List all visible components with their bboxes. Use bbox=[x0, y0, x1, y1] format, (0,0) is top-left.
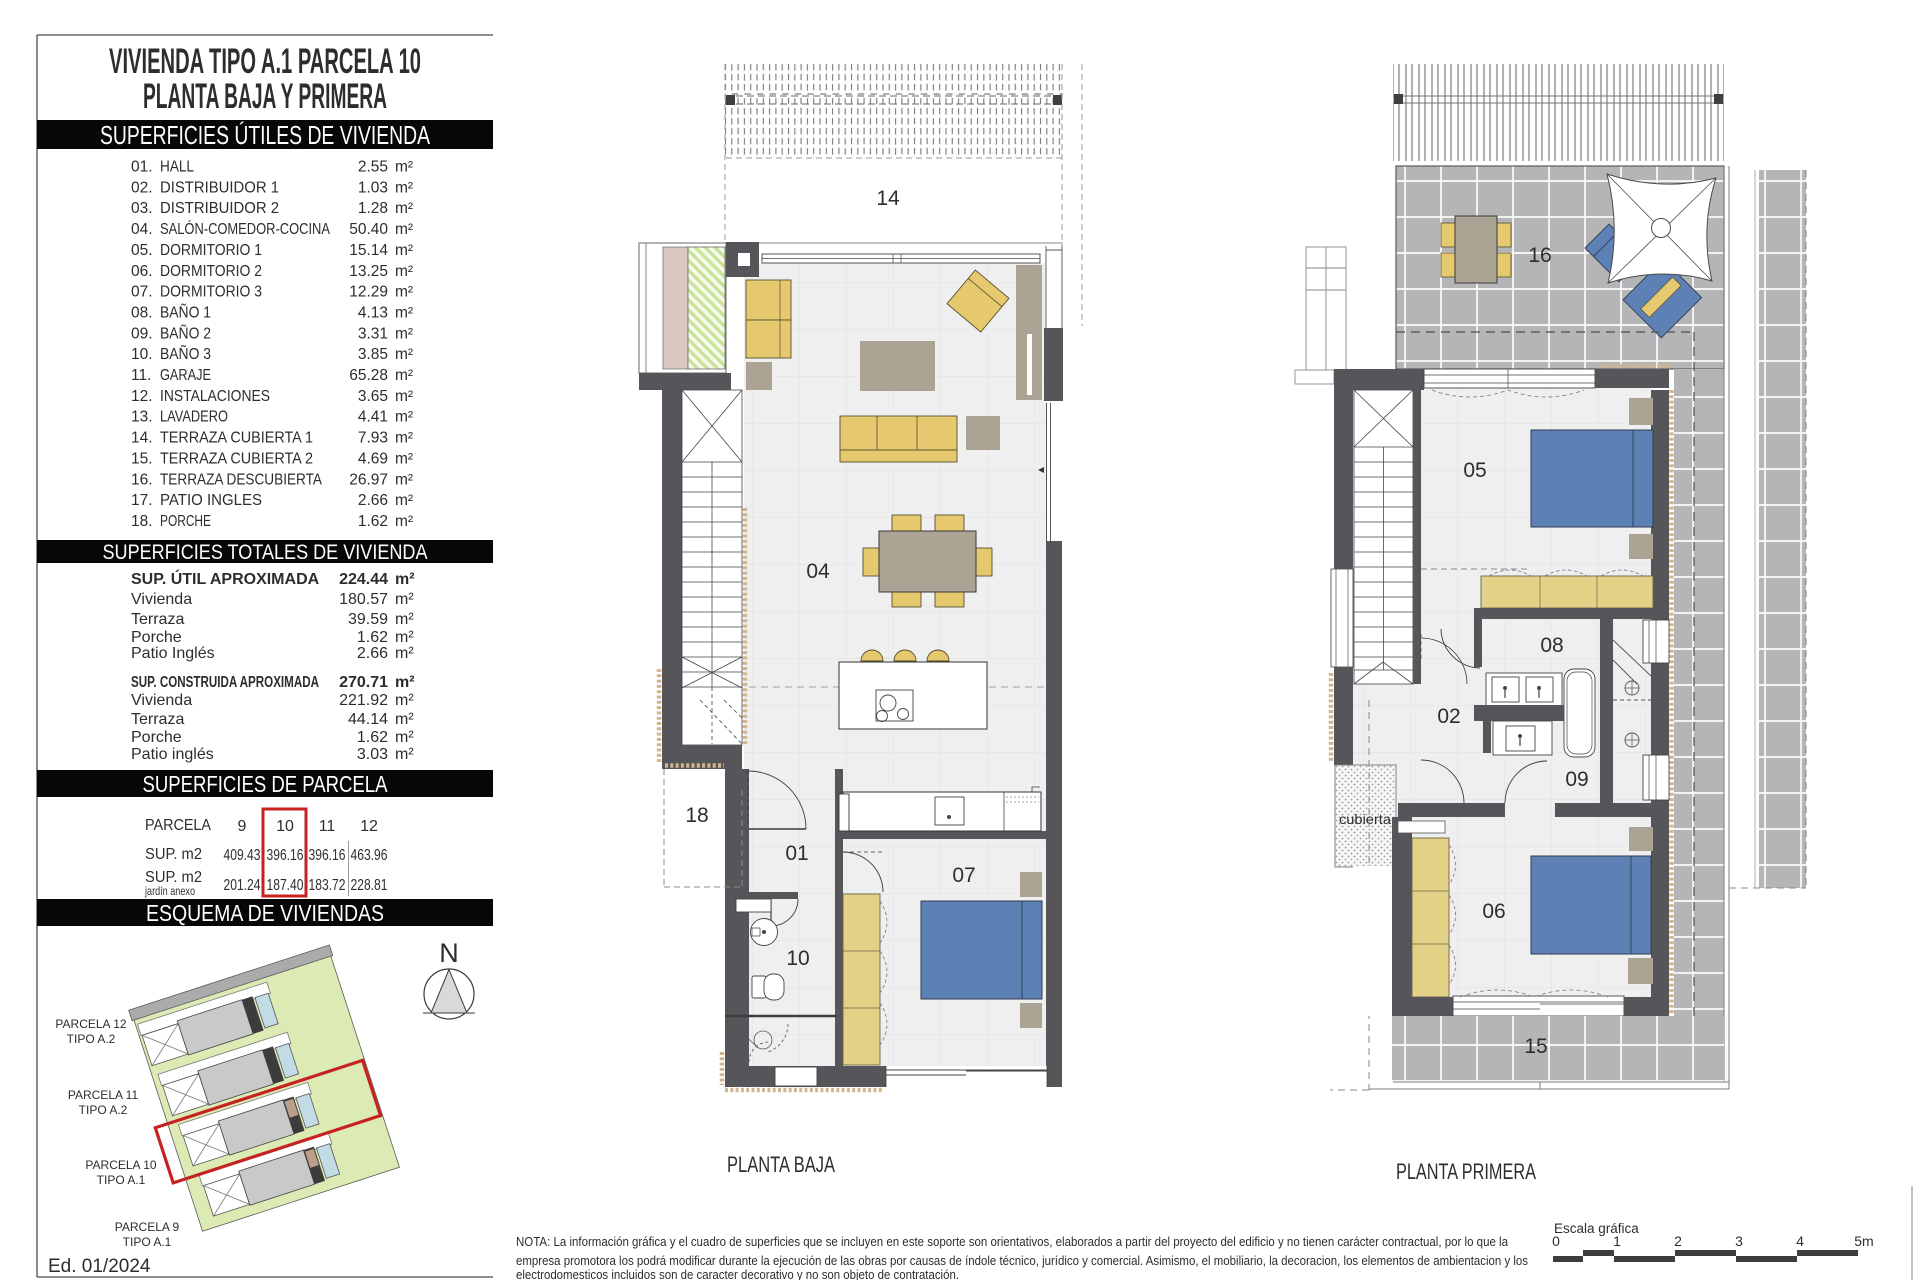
svg-text:18: 18 bbox=[685, 804, 708, 827]
svg-text:m²: m² bbox=[395, 591, 414, 608]
svg-text:201.24: 201.24 bbox=[224, 877, 261, 894]
svg-text:4: 4 bbox=[1796, 1233, 1804, 1249]
svg-text:9: 9 bbox=[238, 818, 247, 835]
svg-text:224.44: 224.44 bbox=[339, 571, 388, 588]
svg-text:TIPO A.1: TIPO A.1 bbox=[97, 1173, 146, 1187]
svg-text:PLANTA BAJA: PLANTA BAJA bbox=[727, 1152, 835, 1177]
svg-text:270.71: 270.71 bbox=[339, 674, 388, 691]
svg-text:44.14: 44.14 bbox=[348, 711, 388, 728]
svg-text:SUP. m2: SUP. m2 bbox=[145, 846, 202, 863]
svg-text:3.03: 3.03 bbox=[357, 746, 388, 763]
svg-text:m²: m² bbox=[395, 263, 413, 280]
svg-text:m²: m² bbox=[395, 430, 413, 447]
svg-text:4.41: 4.41 bbox=[358, 409, 388, 426]
svg-text:1.62: 1.62 bbox=[357, 729, 388, 746]
svg-text:m²: m² bbox=[395, 645, 414, 662]
svg-text:m²: m² bbox=[395, 571, 415, 588]
svg-text:m²: m² bbox=[395, 221, 413, 238]
svg-text:m²: m² bbox=[395, 611, 414, 628]
svg-text:396.16: 396.16 bbox=[267, 847, 304, 864]
svg-text:1: 1 bbox=[1613, 1233, 1621, 1249]
svg-text:1.62: 1.62 bbox=[358, 513, 388, 530]
svg-text:13.: 13. bbox=[131, 409, 153, 426]
svg-text:TIPO A.2: TIPO A.2 bbox=[67, 1032, 116, 1046]
svg-text:15: 15 bbox=[1524, 1035, 1547, 1058]
svg-text:183.72: 183.72 bbox=[309, 877, 346, 894]
svg-text:3: 3 bbox=[1735, 1233, 1743, 1249]
svg-text:m²: m² bbox=[395, 242, 413, 259]
svg-text:PORCHE: PORCHE bbox=[160, 513, 211, 530]
svg-text:Vivienda: Vivienda bbox=[131, 591, 192, 608]
svg-text:2.55: 2.55 bbox=[358, 159, 388, 176]
svg-text:2.66: 2.66 bbox=[357, 645, 388, 662]
svg-text:PARCELA 12: PARCELA 12 bbox=[55, 1017, 126, 1031]
svg-text:180.57: 180.57 bbox=[339, 591, 388, 608]
svg-text:LAVADERO: LAVADERO bbox=[160, 409, 228, 426]
svg-text:ESQUEMA DE VIVIENDAS: ESQUEMA DE VIVIENDAS bbox=[146, 900, 384, 926]
svg-text:m²: m² bbox=[395, 674, 415, 691]
svg-text:SUP. ÚTIL APROXIMADA: SUP. ÚTIL APROXIMADA bbox=[131, 569, 320, 588]
svg-text:GARAJE: GARAJE bbox=[160, 367, 211, 384]
svg-text:1.28: 1.28 bbox=[358, 200, 388, 217]
svg-text:m²: m² bbox=[395, 346, 413, 363]
svg-text:05.: 05. bbox=[131, 242, 153, 259]
svg-text:0: 0 bbox=[1552, 1233, 1560, 1249]
svg-text:PARCELA 11: PARCELA 11 bbox=[68, 1088, 139, 1102]
svg-text:07: 07 bbox=[952, 864, 975, 887]
svg-text:PATIO INGLES: PATIO INGLES bbox=[160, 492, 262, 509]
svg-text:Terraza: Terraza bbox=[131, 611, 184, 628]
svg-text:16: 16 bbox=[1528, 244, 1551, 267]
svg-text:11.: 11. bbox=[131, 367, 151, 384]
svg-text:jardín anexo: jardín anexo bbox=[144, 884, 195, 898]
svg-text:Terraza: Terraza bbox=[131, 711, 184, 728]
svg-text:VIVIENDA TIPO A.1 PARCELA 10: VIVIENDA TIPO A.1 PARCELA 10 bbox=[109, 42, 421, 81]
svg-text:14.: 14. bbox=[131, 430, 153, 447]
svg-text:m²: m² bbox=[395, 492, 413, 509]
svg-text:BAÑO 1: BAÑO 1 bbox=[160, 305, 211, 322]
svg-text:TERRAZA DESCUBIERTA: TERRAZA DESCUBIERTA bbox=[160, 471, 323, 488]
svg-text:5m: 5m bbox=[1854, 1233, 1873, 1249]
svg-text:396.16: 396.16 bbox=[309, 847, 346, 864]
svg-text:m²: m² bbox=[395, 692, 414, 709]
svg-text:Escala gráfica: Escala gráfica bbox=[1554, 1221, 1639, 1236]
svg-text:228.81: 228.81 bbox=[351, 877, 388, 894]
svg-text:39.59: 39.59 bbox=[348, 611, 388, 628]
svg-text:187.40: 187.40 bbox=[267, 877, 304, 894]
svg-text:N: N bbox=[439, 938, 459, 968]
svg-text:65.28: 65.28 bbox=[349, 367, 388, 384]
svg-text:2: 2 bbox=[1674, 1233, 1682, 1249]
svg-text:SUPERFICIES TOTALES DE VIVIEND: SUPERFICIES TOTALES DE VIVIENDA bbox=[103, 541, 428, 564]
svg-text:04.: 04. bbox=[131, 221, 153, 238]
svg-text:50.40: 50.40 bbox=[349, 221, 388, 238]
svg-text:12.: 12. bbox=[131, 388, 153, 405]
svg-text:02: 02 bbox=[1437, 705, 1460, 728]
svg-text:01.: 01. bbox=[131, 159, 153, 176]
svg-text:DORMITORIO 2: DORMITORIO 2 bbox=[160, 263, 262, 280]
svg-text:m²: m² bbox=[395, 179, 413, 196]
svg-text:08: 08 bbox=[1540, 634, 1563, 657]
svg-text:m²: m² bbox=[395, 409, 413, 426]
svg-text:06: 06 bbox=[1482, 900, 1505, 923]
svg-text:4.69: 4.69 bbox=[358, 450, 388, 467]
svg-text:TERRAZA CUBIERTA 1: TERRAZA CUBIERTA 1 bbox=[160, 430, 313, 447]
svg-text:TIPO A.2: TIPO A.2 bbox=[79, 1103, 128, 1117]
svg-text:10.: 10. bbox=[131, 346, 153, 363]
svg-text:11: 11 bbox=[319, 818, 336, 835]
svg-text:m²: m² bbox=[395, 711, 414, 728]
svg-text:m²: m² bbox=[395, 325, 413, 342]
svg-text:463.96: 463.96 bbox=[351, 847, 388, 864]
svg-text:16.: 16. bbox=[131, 471, 153, 488]
svg-text:m²: m² bbox=[395, 159, 413, 176]
svg-text:3.31: 3.31 bbox=[358, 325, 388, 342]
svg-text:m²: m² bbox=[395, 729, 414, 746]
svg-text:Patio Inglés: Patio Inglés bbox=[131, 645, 215, 662]
svg-text:Patio inglés: Patio inglés bbox=[131, 746, 214, 763]
svg-text:SUP. CONSTRUIDA APROXIMADA: SUP. CONSTRUIDA APROXIMADA bbox=[131, 674, 319, 691]
svg-text:TIPO A.1: TIPO A.1 bbox=[123, 1235, 172, 1249]
svg-text:18.: 18. bbox=[131, 513, 153, 530]
svg-text:221.92: 221.92 bbox=[339, 692, 388, 709]
svg-text:electrodomesticos incluidos so: electrodomesticos incluidos son de carac… bbox=[516, 1268, 959, 1280]
svg-text:07.: 07. bbox=[131, 284, 153, 301]
svg-text:04: 04 bbox=[806, 560, 830, 583]
svg-text:PARCELA 10: PARCELA 10 bbox=[85, 1158, 156, 1172]
svg-text:Ed. 01/2024: Ed. 01/2024 bbox=[48, 1256, 151, 1277]
svg-text:HALL: HALL bbox=[160, 159, 194, 176]
svg-text:7.93: 7.93 bbox=[358, 430, 388, 447]
svg-text:14: 14 bbox=[876, 187, 900, 210]
svg-text:02.: 02. bbox=[131, 179, 153, 196]
svg-text:SUPERFICIES ÚTILES DE VIVIENDA: SUPERFICIES ÚTILES DE VIVIENDA bbox=[100, 120, 430, 150]
svg-text:17.: 17. bbox=[131, 492, 153, 509]
svg-text:4.13: 4.13 bbox=[358, 305, 388, 322]
svg-text:m²: m² bbox=[395, 471, 413, 488]
svg-text:10: 10 bbox=[786, 947, 809, 970]
svg-text:DISTRIBUIDOR 1: DISTRIBUIDOR 1 bbox=[160, 179, 279, 196]
svg-text:cubierta: cubierta bbox=[1339, 811, 1391, 827]
svg-text:09.: 09. bbox=[131, 325, 153, 342]
svg-text:SUPERFICIES DE PARCELA: SUPERFICIES DE PARCELA bbox=[143, 771, 389, 797]
svg-text:Porche: Porche bbox=[131, 629, 182, 646]
svg-text:empresa promotora los podrá mo: empresa promotora los podrá modificar du… bbox=[516, 1254, 1528, 1268]
svg-text:03.: 03. bbox=[131, 200, 153, 217]
svg-text:TERRAZA CUBIERTA 2: TERRAZA CUBIERTA 2 bbox=[160, 450, 313, 467]
svg-text:05: 05 bbox=[1463, 459, 1486, 482]
svg-text:3.65: 3.65 bbox=[358, 388, 388, 405]
svg-text:DISTRIBUIDOR 2: DISTRIBUIDOR 2 bbox=[160, 200, 279, 217]
svg-text:09: 09 bbox=[1565, 768, 1588, 791]
svg-text:PARCELA: PARCELA bbox=[145, 817, 211, 834]
svg-text:m²: m² bbox=[395, 367, 413, 384]
svg-text:409.43: 409.43 bbox=[224, 847, 261, 864]
svg-text:m²: m² bbox=[395, 450, 413, 467]
svg-text:m²: m² bbox=[395, 388, 413, 405]
svg-text:m²: m² bbox=[395, 513, 413, 530]
svg-text:NOTA: La información gráfica y: NOTA: La información gráfica y el cuadro… bbox=[516, 1235, 1508, 1249]
svg-text:1.62: 1.62 bbox=[357, 629, 388, 646]
svg-text:Porche: Porche bbox=[131, 729, 182, 746]
svg-text:06.: 06. bbox=[131, 263, 153, 280]
svg-text:3.85: 3.85 bbox=[358, 346, 388, 363]
svg-text:BAÑO 2: BAÑO 2 bbox=[160, 325, 211, 342]
svg-text:2.66: 2.66 bbox=[358, 492, 388, 509]
svg-text:m²: m² bbox=[395, 284, 413, 301]
svg-text:Vivienda: Vivienda bbox=[131, 692, 192, 709]
svg-text:SALÓN-COMEDOR-COCINA: SALÓN-COMEDOR-COCINA bbox=[160, 221, 331, 238]
svg-text:10: 10 bbox=[276, 818, 294, 835]
svg-text:PLANTA PRIMERA: PLANTA PRIMERA bbox=[1396, 1159, 1536, 1184]
svg-text:INSTALACIONES: INSTALACIONES bbox=[160, 388, 270, 405]
svg-text:1.03: 1.03 bbox=[358, 179, 388, 196]
svg-text:m²: m² bbox=[395, 746, 414, 763]
svg-text:13.25: 13.25 bbox=[349, 263, 388, 280]
svg-text:DORMITORIO 1: DORMITORIO 1 bbox=[160, 242, 262, 259]
svg-text:PARCELA 9: PARCELA 9 bbox=[115, 1220, 180, 1234]
svg-text:PLANTA BAJA Y PRIMERA: PLANTA BAJA Y PRIMERA bbox=[143, 77, 387, 116]
svg-text:08.: 08. bbox=[131, 305, 153, 322]
svg-text:m²: m² bbox=[395, 629, 414, 646]
svg-text:DORMITORIO 3: DORMITORIO 3 bbox=[160, 284, 262, 301]
svg-text:BAÑO 3: BAÑO 3 bbox=[160, 346, 211, 363]
svg-text:12: 12 bbox=[360, 818, 378, 835]
svg-text:m²: m² bbox=[395, 200, 413, 217]
svg-text:12.29: 12.29 bbox=[349, 284, 388, 301]
svg-text:26.97: 26.97 bbox=[349, 471, 388, 488]
svg-text:15.14: 15.14 bbox=[349, 242, 388, 259]
svg-text:m²: m² bbox=[395, 305, 413, 322]
svg-text:15.: 15. bbox=[131, 450, 153, 467]
svg-text:01: 01 bbox=[785, 842, 808, 865]
